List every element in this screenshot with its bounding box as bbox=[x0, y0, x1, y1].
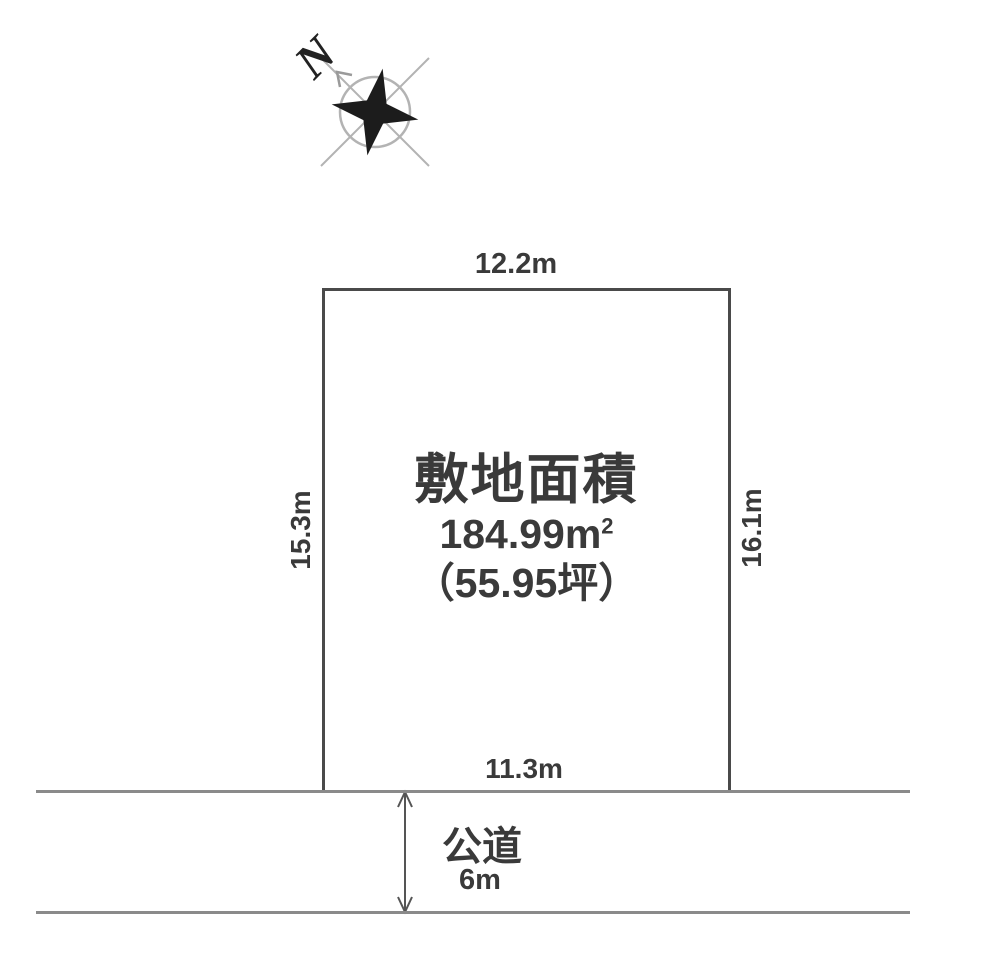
site-area-value-number: 184.99m bbox=[439, 511, 601, 557]
dimension-bottom-label: 11.3m bbox=[448, 753, 600, 785]
road-top-edge-line bbox=[36, 790, 910, 793]
road-bottom-edge-line bbox=[36, 911, 910, 914]
north-arrow-icon bbox=[337, 72, 352, 87]
site-area-block: 敷地面積 184.99m2 （55.95坪） bbox=[322, 450, 731, 608]
compass-rose-icon: N bbox=[284, 25, 429, 166]
site-area-value: 184.99m2 bbox=[322, 510, 731, 559]
land-plot-diagram: N 12.2m 15.3m 16.1m 11.3m 敷地面積 184.99m2 … bbox=[0, 0, 1000, 971]
site-area-tsubo: （55.95坪） bbox=[322, 559, 731, 608]
dimension-top-label: 12.2m bbox=[440, 248, 592, 281]
site-area-value-superscript: 2 bbox=[601, 513, 613, 538]
dimension-right-label: 16.1m bbox=[736, 453, 768, 603]
road-width-label: 6m bbox=[404, 864, 556, 897]
dimension-left-label: 15.3m bbox=[285, 455, 317, 605]
site-area-title: 敷地面積 bbox=[322, 450, 731, 510]
